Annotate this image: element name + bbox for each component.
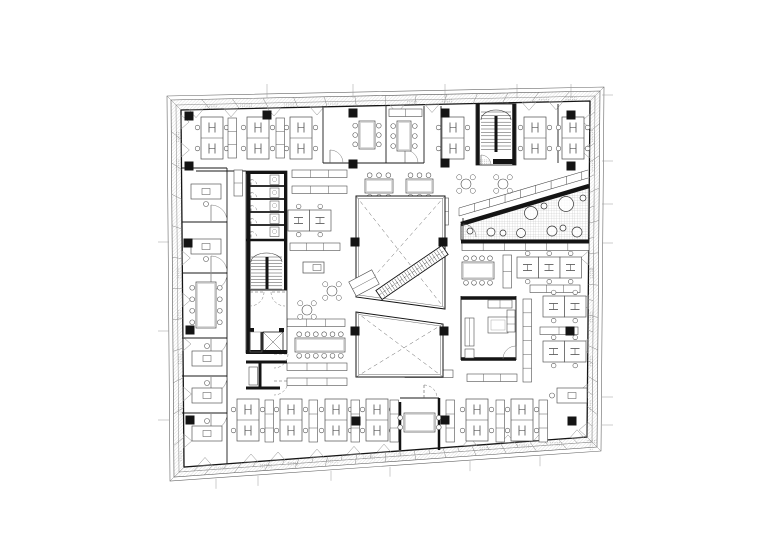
column [185,162,194,171]
column [441,416,450,425]
column [567,111,576,120]
column [351,327,360,336]
column [351,238,360,247]
column [186,326,195,335]
column [186,416,195,425]
service-core-left [246,171,287,353]
column [349,160,358,169]
column [566,327,575,336]
column [441,109,450,118]
planted-terrace [455,165,600,250]
column [185,112,194,121]
column [263,111,272,120]
office-floor-plan-drawing [0,0,780,552]
kitchen-island [303,262,324,273]
stair-core-top [476,104,516,165]
column [352,417,361,426]
column [439,238,448,247]
column [440,327,449,336]
column [568,417,577,426]
column [349,109,358,118]
floor-plan-page [0,0,780,552]
column [441,159,450,168]
column [184,239,193,248]
column [567,162,576,171]
